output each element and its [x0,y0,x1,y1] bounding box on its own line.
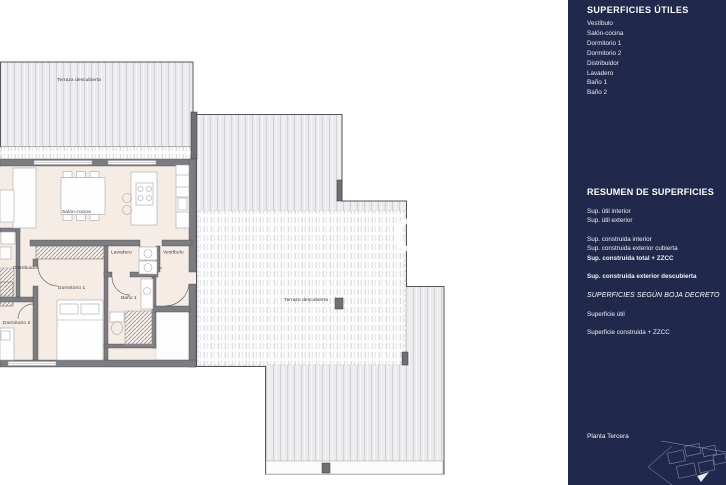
room-list-item: Lavadero [587,69,722,79]
superficies-utiles-title: SUPERFICIES ÚTILES [587,5,722,15]
resumen-exterior-line: Sup. construida exterior descubierta [587,272,722,281]
room-list-item: Salón-cocina [587,29,722,39]
resumen-total-line: Sup. construida total + ZZCC [587,254,722,263]
resumen-line: Sup. construida interior [587,235,722,244]
resumen-util-group: Sup. útil interior Sup. útil exterior [587,207,722,226]
label-terraza-main: Terraza descubierta [284,297,328,303]
room-list-item: Distribuidor [587,59,722,69]
apartment-notch [156,312,189,360]
label-distribuidor: Distribuidor [13,265,39,271]
site-boundary [648,446,672,485]
room-list-item: Dormitorio 2 [587,49,722,59]
label-lavadero: Lavadero [111,250,132,256]
leader-line [661,441,726,452]
bedroom2-furniture [0,328,14,360]
label-vestibulo: Vestíbulo [163,250,184,256]
location-arrow-icon [697,472,709,482]
label-terraza-top: Terraza descubierta [57,77,101,83]
label-dormitorio-1: Dormitorio 1 [58,285,86,291]
room-list-item: Dormitorio 1 [587,39,722,49]
site-buildings [667,439,726,480]
label-bano-1: Baño 1 [121,295,137,301]
floor-plan-sheet: Terraza descubierta Salón-cocina Distrib… [0,0,726,485]
label-salon-cocina: Salón-cocina [62,209,91,215]
label-dormitorio-2: Dormitorio 2 [3,320,31,326]
resumen-line: Sup. construida exterior cubierta [587,244,722,253]
boja-title: SUPERFICIES SEGÚN BOJA DECRETO [587,292,722,299]
resumen-line: Sup. útil exterior [587,216,722,225]
watermark: CE [392,208,462,262]
bedroom1-furniture [57,300,103,360]
superficies-utiles-list: Vestíbulo Salón-cocina Dormitorio 1 Dorm… [587,19,722,98]
boja-line: Superficie construida + ZZCC [587,328,722,337]
info-panel: SUPERFICIES ÚTILES Vestíbulo Salón-cocin… [568,0,726,485]
resumen-line: Sup. útil interior [587,207,722,216]
room-list-item: Vestíbulo [587,19,722,29]
resumen-title: RESUMEN DE SUPERFICIES [587,187,722,197]
site-plan-sketch [614,434,726,485]
room-list-item: Baño 1 [587,78,722,88]
terrace-main [191,112,444,474]
boja-line: Superficie útil [587,310,722,319]
resumen-construida-group: Sup. construida interior Sup. construida… [587,235,722,254]
room-list-item: Baño 2 [587,88,722,98]
terrace-top-left [1,62,194,160]
